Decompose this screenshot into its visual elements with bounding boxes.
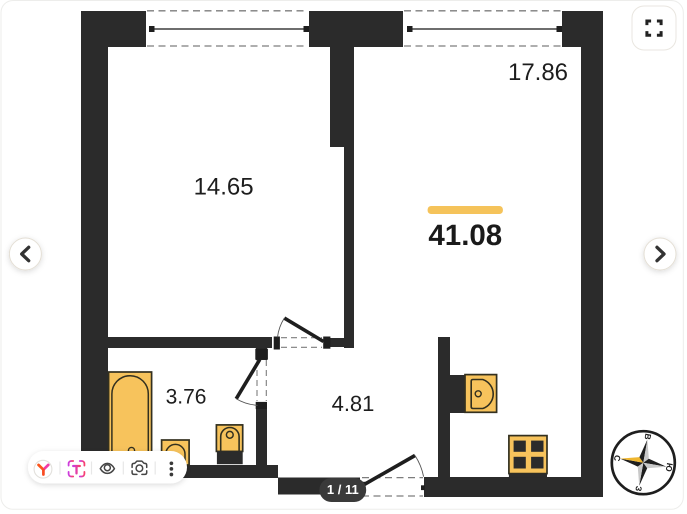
svg-text:41.08: 41.08	[428, 219, 502, 252]
svg-text:14.65: 14.65	[194, 174, 254, 201]
svg-text:4.81: 4.81	[332, 391, 375, 416]
svg-text:1 / 11: 1 / 11	[327, 482, 359, 497]
svg-text:3.76: 3.76	[166, 385, 207, 408]
svg-text:17.86: 17.86	[508, 59, 568, 86]
